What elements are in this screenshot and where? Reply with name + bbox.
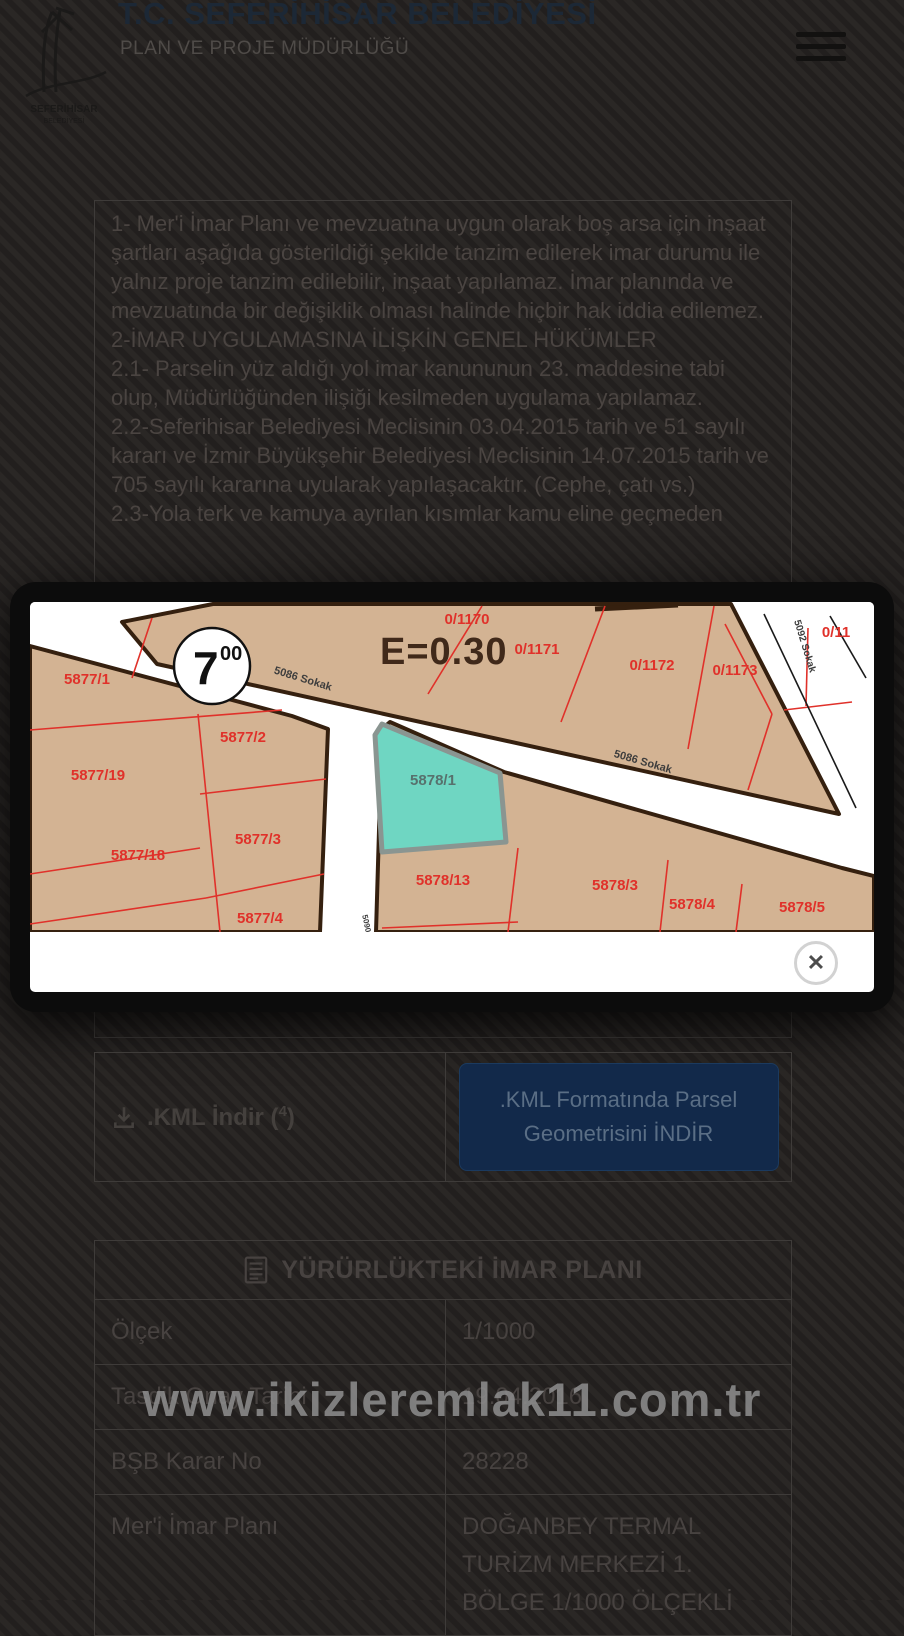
municipality-logo-icon: SEFERİHİSAR BELEDİYESİ xyxy=(14,0,114,125)
svg-text:7: 7 xyxy=(193,642,219,694)
kml-download-link[interactable]: .KML İndir (4) xyxy=(95,1053,446,1181)
parcel-label: 5878/13 xyxy=(416,872,470,889)
rules-paragraph: 2.3-Yola terk ve kamuya ayrılan kısımlar… xyxy=(111,499,775,528)
parcel-label: 5877/1 xyxy=(64,671,110,688)
imar-plan-table: YÜRÜRLÜKTEKİ İMAR PLANI Ölçek1/1000Tasdi… xyxy=(94,1240,792,1636)
rules-paragraph: 2-İMAR UYGULAMASINA İLİŞKİN GENEL HÜKÜML… xyxy=(111,325,775,354)
parcel-label: 5877/4 xyxy=(237,910,284,927)
table-row-value: DOĞANBEY TERMAL TURİZM MERKEZİ 1. BÖLGE … xyxy=(446,1495,791,1635)
download-icon xyxy=(111,1104,137,1130)
table-row-label: Mer'i İmar Planı xyxy=(95,1495,446,1635)
table-row-label: Tasdik Onay Tarihi xyxy=(95,1365,446,1429)
table-row: Tasdik Onay Tarihi19.04.2016 xyxy=(95,1365,791,1430)
parcel-label: 0/1170 xyxy=(444,611,489,628)
parcel-label: 0/1171 xyxy=(514,641,559,658)
svg-text:SEFERİHİSAR: SEFERİHİSAR xyxy=(30,102,98,115)
road-width-badge: 7 00 xyxy=(174,628,250,704)
selected-parcel-label: 5878/1 xyxy=(410,772,456,789)
parcel-label: 5878/3 xyxy=(592,877,638,894)
table-row-value: 19.04.2016 xyxy=(446,1365,791,1429)
parcel-label: 5877/18 xyxy=(111,847,165,864)
parcel-label: 5878/4 xyxy=(669,896,716,913)
close-icon[interactable]: ✕ xyxy=(794,941,838,985)
document-icon xyxy=(243,1256,269,1284)
page-title: T.C. SEFERİHİSAR BELEDİYESİ xyxy=(118,0,597,32)
efficiency-label: E=0.30 xyxy=(380,631,508,673)
table-row-value: 1/1000 xyxy=(446,1300,791,1364)
table-row-label: Ölçek xyxy=(95,1300,446,1364)
parcel-label: 5877/19 xyxy=(71,767,125,784)
page-subtitle: PLAN VE PROJE MÜDÜRLÜĞÜ xyxy=(120,38,409,60)
rules-paragraph: 2.2-Seferihisar Belediyesi Meclisinin 03… xyxy=(111,412,775,499)
rules-paragraph: 2.1- Parselin yüz aldığı yol imar kanunu… xyxy=(111,354,775,412)
rules-paragraph: 1- Mer'i İmar Planı ve mevzuatına uygun … xyxy=(111,209,775,325)
kml-download-row: .KML İndir (4) .KML Formatında Parsel Ge… xyxy=(94,1052,792,1182)
imar-table-header: YÜRÜRLÜKTEKİ İMAR PLANI xyxy=(95,1241,791,1300)
table-row: BŞB Karar No28228 xyxy=(95,1430,791,1495)
table-row: Ölçek1/1000 xyxy=(95,1300,791,1365)
parcel-label: 0/11 xyxy=(822,624,850,641)
parcel-label: 5878/5 xyxy=(779,899,825,916)
table-row-label: BŞB Karar No xyxy=(95,1430,446,1494)
parcel-label: 0/1173 xyxy=(712,662,757,679)
parcel-label: 5877/2 xyxy=(220,729,266,746)
hamburger-menu-icon[interactable] xyxy=(796,32,846,68)
imar-plan-modal-body: 7 00 E=0.30 0/11700/11710/11720/11730/11… xyxy=(30,602,874,992)
table-row: Mer'i İmar PlanıDOĞANBEY TERMAL TURİZM M… xyxy=(95,1495,791,1635)
parcel-label: 0/1172 xyxy=(629,657,674,674)
kml-geometry-download-button[interactable]: .KML Formatında Parsel Geometrisini İNDİ… xyxy=(459,1063,779,1171)
svg-text:BELEDİYESİ: BELEDİYESİ xyxy=(44,116,85,125)
imar-plan-map: 7 00 E=0.30 0/11700/11710/11720/11730/11… xyxy=(30,602,874,932)
table-row-value: 28228 xyxy=(446,1430,791,1494)
page-header: SEFERİHİSAR BELEDİYESİ T.C. SEFERİHİSAR … xyxy=(0,0,904,130)
imar-plan-modal: 7 00 E=0.30 0/11700/11710/11720/11730/11… xyxy=(10,582,894,1012)
svg-text:00: 00 xyxy=(220,643,242,665)
parcel-label: 5877/3 xyxy=(235,831,281,848)
